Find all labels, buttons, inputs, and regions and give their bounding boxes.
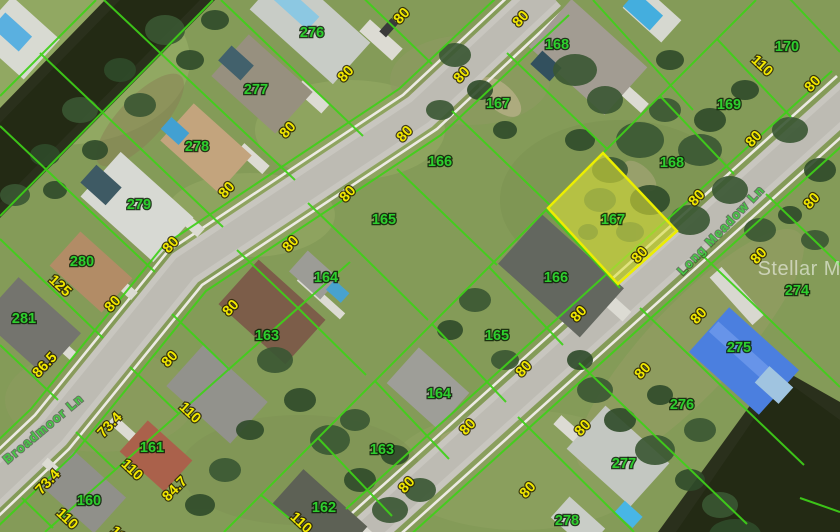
parcel-label-162: 162 — [312, 500, 336, 516]
parcel-label-164: 164 — [314, 270, 338, 286]
parcel-label-281: 281 — [12, 311, 36, 327]
parcel-label-164: 164 — [427, 386, 451, 402]
parcel-label-275: 275 — [727, 340, 751, 356]
parcel-label-161: 161 — [140, 440, 164, 456]
parcel-label-279: 279 — [127, 197, 151, 213]
stellar-mls-watermark: Stellar MLS — [758, 258, 840, 280]
parcel-label-278: 278 — [185, 139, 209, 155]
parcel-label-277: 277 — [244, 82, 268, 98]
parcel-label-274: 274 — [785, 283, 809, 299]
parcel-label-168: 168 — [660, 155, 684, 171]
parcel-label-170: 170 — [775, 39, 799, 55]
aerial-parcel-map: 8080808011080808080808080808080808012580… — [0, 0, 840, 532]
parcel-label-278: 278 — [555, 513, 579, 529]
parcel-label-168: 168 — [545, 37, 569, 53]
parcel-label-277: 277 — [612, 456, 636, 472]
parcel-label-276: 276 — [300, 25, 324, 41]
parcel-label-166: 166 — [428, 154, 452, 170]
parcel-label-280: 280 — [70, 254, 94, 270]
parcel-label-165: 165 — [485, 328, 509, 344]
satellite-map-image: 8080808011080808080808080808080808012580… — [0, 0, 840, 532]
parcel-label-165: 165 — [372, 212, 396, 228]
watermark: Stellar MLS — [758, 258, 840, 280]
parcel-label-160: 160 — [77, 493, 101, 509]
parcel-label-169: 169 — [717, 97, 741, 113]
parcel-label-166: 166 — [544, 270, 568, 286]
parcel-label-163: 163 — [255, 328, 279, 344]
parcel-label-163: 163 — [370, 442, 394, 458]
parcel-label-167: 167 — [486, 96, 510, 112]
parcel-label-276: 276 — [670, 397, 694, 413]
parcel-label-167: 167 — [601, 212, 625, 228]
